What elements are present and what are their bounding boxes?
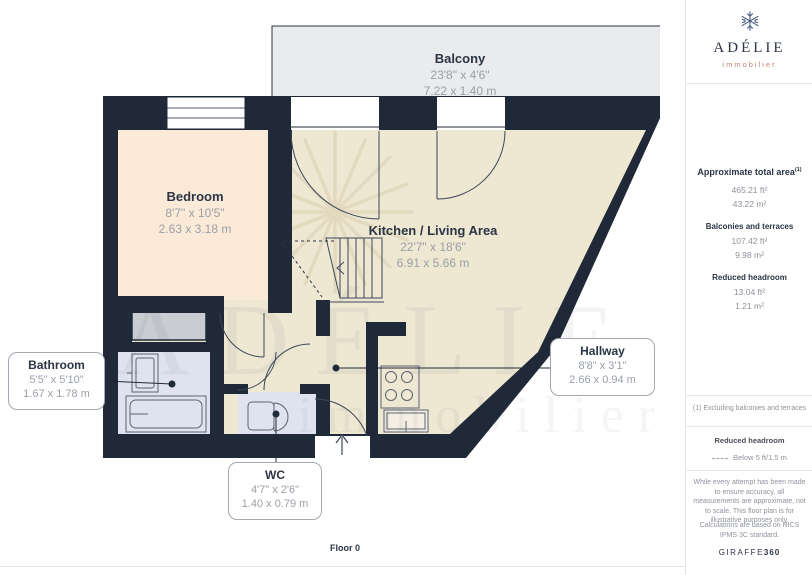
room-dims-m: 2.63 x 3.18 m xyxy=(110,221,280,237)
reduced-headroom-ft: 13.04 ft² xyxy=(686,286,812,300)
floorplan-page: ADÉLIE immobilier Balcony 23'8" x 4'6" 7… xyxy=(0,0,812,575)
room-dims-m: 7.22 x 1.40 m xyxy=(360,83,560,99)
room-dims-m: 6.91 x 5.66 m xyxy=(318,255,548,271)
giraffe360-logo: GIRAFFE360 xyxy=(686,548,812,557)
kitchen-sink-icon xyxy=(384,410,428,432)
giraffe360-name: GIRAFFE xyxy=(719,548,764,557)
sidebar-divider xyxy=(686,83,812,84)
giraffe360-suffix: 360 xyxy=(764,548,780,557)
entry-door xyxy=(315,435,370,458)
room-label-balcony: Balcony 23'8" x 4'6" 7.22 x 1.40 m xyxy=(360,50,560,99)
room-dims-ft: 5'5" x 5'10" xyxy=(13,373,100,387)
room-dims-ft: 4'7" x 2'6" xyxy=(233,483,317,497)
total-area-title: Approximate total area(1) xyxy=(686,167,812,177)
total-area-ft: 465.21 ft² xyxy=(686,184,812,198)
sidebar-divider xyxy=(686,395,812,396)
callout-bathroom: Bathroom 5'5" x 5'10" 1.67 x 1.78 m xyxy=(8,352,105,410)
sidebar-divider xyxy=(686,426,812,427)
room-name: Bedroom xyxy=(110,188,280,205)
legend-row: Below 5 ft/1.5 m xyxy=(686,453,812,462)
room-dims-ft: 8'7" x 10'5" xyxy=(110,205,280,221)
callout-hallway: Hallway 8'8" x 3'1" 2.66 x 0.94 m xyxy=(550,338,655,396)
brand-name: ADÉLIE xyxy=(686,40,812,57)
floor-label: Floor 0 xyxy=(300,543,390,553)
room-name: WC xyxy=(233,468,317,483)
standard-note: Calculations are based on RICS IPMS 3C s… xyxy=(693,521,806,540)
area-summary: Approximate total area(1) 465.21 ft² 43.… xyxy=(686,167,812,313)
reduced-headroom-legend: Reduced headroom Below 5 ft/1.5 m xyxy=(686,436,812,462)
disclaimer-text: While every attempt has been made to ens… xyxy=(693,478,806,526)
info-sidebar: ADÉLIE immobilier Approximate total area… xyxy=(685,0,812,575)
snowflake-icon xyxy=(739,10,761,32)
room-name: Hallway xyxy=(555,344,650,359)
room-dims-ft: 22'7" x 18'6" xyxy=(318,239,548,255)
total-area-m: 43.22 m² xyxy=(686,198,812,212)
room-dims-m: 1.40 x 0.79 m xyxy=(233,497,317,511)
room-dims-ft: 23'8" x 4'6" xyxy=(360,67,560,83)
callout-wc: WC 4'7" x 2'6" 1.40 x 0.79 m xyxy=(228,462,322,520)
room-dims-m: 2.66 x 0.94 m xyxy=(555,373,650,387)
sidebar-divider xyxy=(686,470,812,471)
room-label-kitchen-living: Kitchen / Living Area 22'7" x 18'6" 6.91… xyxy=(318,222,548,271)
total-area-footnote-marker: (1) xyxy=(795,167,802,173)
total-area-label: Approximate total area xyxy=(697,167,795,177)
brand-tagline: immobilier xyxy=(686,60,812,69)
area-footnote: (1) Excluding balconies and terraces xyxy=(692,404,807,414)
room-dims-m: 1.67 x 1.78 m xyxy=(13,387,100,401)
room-name: Bathroom xyxy=(13,358,100,373)
dashed-line-swatch xyxy=(712,458,728,459)
balconies-label: Balconies and terraces xyxy=(686,222,812,231)
reduced-headroom-m: 1.21 m² xyxy=(686,300,812,314)
balconies-m: 9.98 m² xyxy=(686,249,812,263)
bedroom-window xyxy=(167,97,245,129)
balconies-ft: 107.42 ft² xyxy=(686,235,812,249)
legend-item-label: Below 5 ft/1.5 m xyxy=(733,453,787,462)
room-dims-ft: 8'8" x 3'1" xyxy=(555,359,650,373)
legend-title: Reduced headroom xyxy=(686,436,812,445)
room-label-bedroom: Bedroom 8'7" x 10'5" 2.63 x 3.18 m xyxy=(110,188,280,237)
brand-logo: ADÉLIE immobilier xyxy=(686,10,812,69)
reduced-headroom-label: Reduced headroom xyxy=(686,273,812,282)
room-name: Balcony xyxy=(360,50,560,67)
room-name: Kitchen / Living Area xyxy=(318,222,548,239)
floorplan-canvas xyxy=(0,0,660,575)
